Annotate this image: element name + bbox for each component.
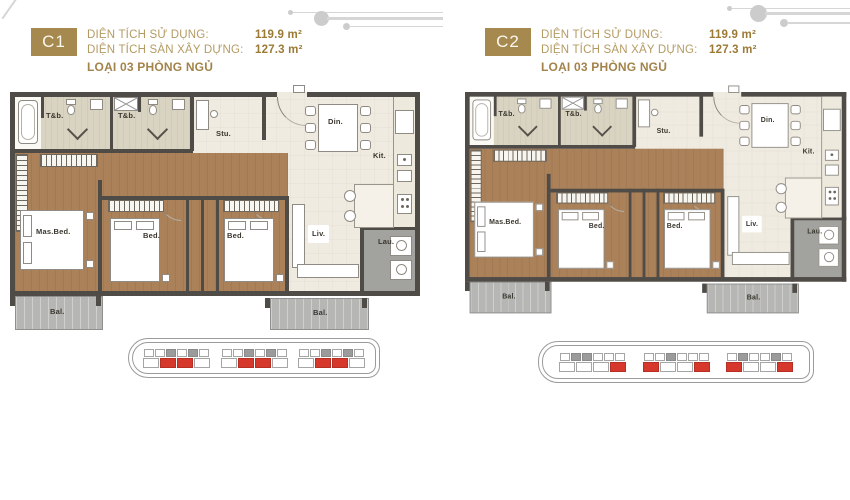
sink-icon: [172, 99, 185, 110]
locator-unit-cell: [677, 353, 687, 361]
wall-segment: [285, 196, 289, 294]
kitchen-island: [785, 178, 822, 219]
wall-segment: [201, 196, 204, 294]
locator-highlighted-unit: [643, 362, 659, 372]
stool-icon: [344, 190, 356, 202]
locator-unit-cell: [688, 353, 698, 361]
pillow-icon: [136, 221, 154, 230]
nightstand-icon: [536, 248, 543, 255]
locator-unit-cell: [593, 362, 609, 372]
pillow-icon: [250, 221, 268, 230]
desk-chair-icon: [651, 109, 658, 116]
unit-type-line: LOẠI 03 PHÒNG NGỦ: [87, 59, 303, 75]
chair-icon: [739, 137, 749, 146]
locator-highlighted-unit: [160, 358, 176, 368]
room-label-kitchen: Kit.: [373, 152, 386, 160]
washer-door-icon: [396, 240, 407, 251]
locator-group: [298, 349, 365, 368]
washer-door-icon: [824, 230, 834, 240]
linen-closet-icon: [562, 97, 584, 110]
locator-highlighted-unit: [255, 358, 271, 368]
sink-icon: [616, 99, 628, 109]
room-label-balcony-2: Bal.: [313, 309, 328, 317]
locator-unit-cell: [644, 353, 654, 361]
toilet-bowl-icon: [594, 104, 601, 113]
room-label-bedroom-1: Bed.: [143, 232, 160, 240]
locator-unit-cell: [771, 353, 781, 361]
locator-unit-cell: [177, 349, 187, 357]
kitchen-island: [354, 184, 394, 228]
chair-icon: [305, 106, 316, 116]
fridge-icon: [395, 110, 414, 134]
wall-segment: [362, 298, 367, 308]
locator-unit-cell: [760, 353, 770, 361]
wall-segment: [96, 296, 101, 306]
entry-door-marker-icon: [728, 85, 739, 92]
wall-segment: [10, 92, 277, 97]
locator-unit-cell: [582, 353, 592, 361]
building-locator-diagram: [128, 338, 380, 378]
unit-panel-c1: C1 DIỆN TÍCH SỬ DỤNG: 119.9 m² DIỆN TÍCH…: [0, 0, 425, 500]
wall-segment: [110, 92, 113, 151]
pillow-icon: [582, 212, 599, 220]
locator-highlighted-unit: [332, 358, 348, 368]
unit-header: C2 DIỆN TÍCH SỬ DỤNG: 119.9 m² DIỆN TÍCH…: [485, 28, 757, 75]
wall-segment: [10, 149, 193, 153]
locator-unit-cell: [143, 358, 159, 368]
wall-segment: [262, 92, 266, 140]
locator-group: [221, 349, 288, 368]
tv-cabinet-icon: [292, 204, 305, 268]
sofa-icon: [732, 252, 790, 265]
stat-label-usable-area: DIỆN TÍCH SỬ DỤNG:: [87, 28, 255, 43]
unit-header: C1 DIỆN TÍCH SỬ DỤNG: 119.9 m² DIỆN TÍCH…: [31, 28, 303, 75]
nightstand-icon: [606, 261, 613, 268]
unit-code-badge: C1: [31, 28, 77, 56]
locator-unit-cell: [272, 358, 288, 368]
stove-icon: [397, 194, 412, 214]
floor-plan: T&b. T&b. Stu. Din. Kit. Mas.Bed. Bed. B…: [465, 92, 846, 318]
locator-highlighted-unit: [238, 358, 254, 368]
wall-segment: [10, 92, 15, 296]
locator-highlighted-unit: [177, 358, 193, 368]
wall-segment: [10, 296, 15, 306]
wall-segment: [360, 226, 364, 296]
locator-group: [726, 353, 793, 372]
wall-segment: [842, 92, 847, 282]
wall-segment: [10, 291, 420, 296]
locator-unit-cell: [666, 353, 676, 361]
locator-unit-cell: [738, 353, 748, 361]
locator-unit-cell: [222, 349, 232, 357]
wardrobe-icon: [556, 192, 608, 203]
wall-segment: [699, 92, 703, 137]
stool-icon: [776, 183, 787, 194]
wall-segment: [465, 282, 470, 291]
unit-panel-c2: C2 DIỆN TÍCH SỬ DỤNG: 119.9 m² DIỆN TÍCH…: [425, 0, 850, 500]
wall-segment: [702, 284, 707, 293]
wall-segment: [643, 189, 646, 280]
locator-unit-cell: [560, 353, 570, 361]
locator-unit-cell: [349, 358, 365, 368]
chair-icon: [739, 105, 749, 114]
wall-segment: [216, 196, 219, 294]
wall-segment: [41, 92, 44, 118]
locator-unit-cell: [615, 353, 625, 361]
burner-icon: [401, 198, 404, 201]
floor-plan: T&b. T&b. Stu. Din. Kit. Mas.Bed. Bed. B…: [10, 92, 420, 335]
nightstand-icon: [276, 274, 284, 282]
locator-group: [559, 353, 626, 372]
room-label-balcony-1: Bal.: [502, 293, 516, 300]
wardrobe-icon: [40, 154, 98, 167]
wall-segment: [629, 189, 632, 280]
pillow-icon: [23, 242, 32, 264]
entry-door-marker-icon: [293, 85, 305, 93]
room-label-balcony-2: Bal.: [747, 294, 761, 301]
desk-icon: [196, 100, 209, 130]
locator-unit-cell: [194, 358, 210, 368]
locator-unit-cell: [559, 362, 575, 372]
chair-icon: [360, 106, 371, 116]
wardrobe-icon: [493, 150, 547, 162]
room-label-bath-1: T&b.: [46, 112, 63, 120]
locator-unit-cell: [277, 349, 287, 357]
bathtub-basin-icon: [21, 104, 35, 140]
stat-label-built-area: DIỆN TÍCH SÀN XÂY DỰNG:: [87, 43, 255, 58]
pillow-icon: [477, 232, 485, 252]
locator-group: [643, 353, 710, 372]
wardrobe-icon: [223, 200, 279, 212]
pillow-icon: [23, 215, 32, 237]
wall-segment: [632, 92, 636, 147]
dryer-door-icon: [396, 264, 407, 275]
burner-icon: [406, 205, 409, 208]
locator-unit-cell: [144, 349, 154, 357]
wall-segment: [465, 145, 635, 149]
pillow-icon: [114, 221, 132, 230]
wall-segment: [415, 92, 420, 296]
room-label-bath-2: T&b.: [565, 111, 581, 118]
locator-group: [143, 349, 210, 368]
locator-unit-cell: [655, 353, 665, 361]
burner-icon: [406, 198, 409, 201]
locator-unit-cell: [310, 349, 320, 357]
burner-icon: [833, 197, 836, 200]
locator-highlighted-unit: [726, 362, 742, 372]
wall-segment: [792, 284, 797, 293]
pillow-icon: [562, 212, 579, 220]
nightstand-icon: [86, 260, 94, 268]
wall-segment: [494, 92, 497, 116]
room-label-laundry: Lau.: [378, 238, 394, 246]
tv-cabinet-icon: [727, 196, 739, 256]
sink-drain-icon: [830, 153, 833, 156]
linen-closet-icon: [114, 97, 138, 111]
locator-unit-cell: [782, 353, 792, 361]
room-label-master: Mas.Bed.: [36, 228, 71, 236]
wall-segment: [791, 217, 795, 282]
room-label-bath-2: T&b.: [118, 112, 135, 120]
chair-icon: [305, 123, 316, 133]
sink-drain-icon: [403, 158, 406, 161]
dining-table-icon: [318, 104, 358, 152]
nightstand-icon: [162, 274, 170, 282]
room-label-living: Liv.: [308, 225, 329, 243]
locator-unit-cell: [233, 349, 243, 357]
stool-icon: [776, 202, 787, 213]
wall-segment: [721, 189, 725, 280]
locator-unit-cell: [244, 349, 254, 357]
wall-segment: [190, 92, 194, 151]
locator-unit-cell: [188, 349, 198, 357]
room-label-dining: Din.: [328, 118, 343, 126]
chair-icon: [739, 121, 749, 130]
locator-unit-cell: [743, 362, 759, 372]
locator-unit-cell: [727, 353, 737, 361]
nightstand-icon: [86, 212, 94, 220]
wardrobe-icon: [663, 192, 715, 203]
wall-segment: [186, 196, 189, 294]
pillow-icon: [477, 206, 485, 226]
locator-unit-cell: [255, 349, 265, 357]
locator-highlighted-unit: [315, 358, 331, 368]
room-label-study: Stu.: [216, 130, 231, 138]
stat-value-usable-area: 119.9 m²: [255, 28, 302, 43]
burner-icon: [833, 191, 836, 194]
toilet-bowl-icon: [149, 105, 157, 115]
wall-segment: [138, 92, 141, 112]
stove-icon: [825, 187, 839, 206]
nightstand-icon: [712, 261, 719, 268]
unit-type-line: LOẠI 03 PHÒNG NGỦ: [541, 59, 757, 75]
chair-icon: [360, 140, 371, 150]
chair-icon: [791, 105, 801, 114]
wall-segment: [465, 92, 470, 282]
stool-icon: [344, 210, 356, 222]
room-label-bedroom-2: Bed.: [227, 232, 244, 240]
wall-segment: [558, 92, 561, 147]
sink-icon: [90, 99, 103, 110]
locator-unit-cell: [604, 353, 614, 361]
building-locator-units: [132, 342, 376, 374]
locator-unit-cell: [576, 362, 592, 372]
wall-segment: [657, 189, 660, 280]
stat-label-usable-area: DIỆN TÍCH SỬ DỤNG:: [541, 28, 709, 43]
sink-icon: [539, 99, 551, 109]
locator-highlighted-unit: [777, 362, 793, 372]
room-label-balcony-1: Bal.: [50, 308, 65, 316]
toilet-bowl-icon: [67, 105, 75, 115]
locator-unit-cell: [321, 349, 331, 357]
chair-icon: [791, 121, 801, 130]
stat-value-built-area: 127.3 m²: [255, 43, 303, 58]
pillow-icon: [668, 212, 685, 220]
nightstand-icon: [536, 204, 543, 211]
locator-unit-cell: [749, 353, 759, 361]
chair-icon: [360, 123, 371, 133]
wall-segment: [584, 92, 587, 111]
locator-unit-cell: [199, 349, 209, 357]
stat-value-built-area: 127.3 m²: [709, 43, 757, 58]
room-label-master: Mas.Bed.: [489, 218, 521, 225]
locator-unit-cell: [343, 349, 353, 357]
desk-chair-icon: [210, 110, 218, 118]
locator-unit-cell: [155, 349, 165, 357]
desk-icon: [638, 99, 650, 127]
room-label-bedroom-1: Bed.: [589, 222, 605, 229]
locator-unit-cell: [266, 349, 276, 357]
fridge-icon: [823, 109, 841, 131]
building-locator-diagram: [538, 341, 814, 383]
room-label-kitchen: Kit.: [803, 148, 815, 155]
locator-unit-cell: [677, 362, 693, 372]
room-label-laundry: Lau.: [807, 228, 822, 235]
floor-plan-slot: T&b. T&b. Stu. Din. Kit. Mas.Bed. Bed. B…: [10, 92, 420, 335]
dryer-door-icon: [824, 252, 834, 262]
floor-plan-slot: T&b. T&b. Stu. Din. Kit. Mas.Bed. Bed. B…: [465, 92, 846, 318]
locator-unit-cell: [354, 349, 364, 357]
locator-unit-cell: [221, 358, 237, 368]
burner-icon: [401, 205, 404, 208]
bathtub-basin-icon: [475, 103, 488, 136]
locator-unit-cell: [699, 353, 709, 361]
pillow-icon: [688, 212, 705, 220]
locator-unit-cell: [660, 362, 676, 372]
sofa-icon: [297, 264, 359, 278]
dining-table-icon: [751, 103, 788, 148]
stat-value-usable-area: 119.9 m²: [709, 28, 756, 43]
locator-unit-cell: [332, 349, 342, 357]
room-label-dining: Din.: [761, 116, 775, 123]
unit-code-badge: C2: [485, 28, 531, 56]
kitchen-sink-icon: [397, 170, 412, 182]
kitchen-sink-icon: [825, 165, 839, 176]
toilet-bowl-icon: [518, 104, 525, 113]
room-label-living: Liv.: [742, 216, 762, 232]
room-label-bedroom-2: Bed.: [667, 222, 683, 229]
chair-icon: [305, 140, 316, 150]
wall-segment: [265, 298, 270, 308]
room-label-study: Stu.: [657, 127, 671, 134]
locator-unit-cell: [299, 349, 309, 357]
stat-label-built-area: DIỆN TÍCH SÀN XÂY DỰNG:: [541, 43, 709, 58]
locator-unit-cell: [760, 362, 776, 372]
pillow-icon: [228, 221, 246, 230]
locator-unit-cell: [593, 353, 603, 361]
room-label-bath-1: T&b.: [498, 111, 514, 118]
wall-segment: [465, 92, 713, 97]
locator-unit-cell: [298, 358, 314, 368]
locator-unit-cell: [166, 349, 176, 357]
locator-unit-cell: [571, 353, 581, 361]
wall-segment: [545, 282, 550, 291]
burner-icon: [829, 197, 832, 200]
building-locator-units: [542, 345, 810, 379]
locator-highlighted-unit: [694, 362, 710, 372]
locator-highlighted-unit: [610, 362, 626, 372]
chair-icon: [791, 137, 801, 146]
wardrobe-icon: [108, 200, 164, 212]
burner-icon: [829, 191, 832, 194]
